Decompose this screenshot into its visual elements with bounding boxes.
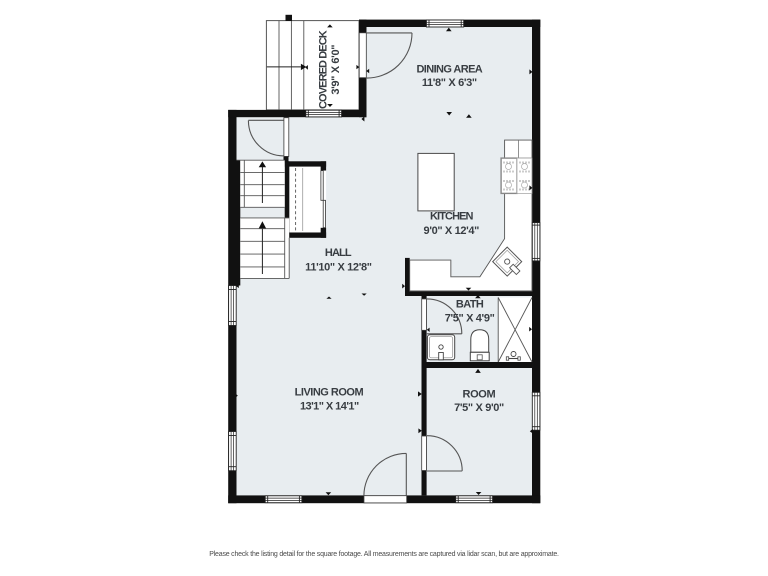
svg-text:11'10" X 12'8": 11'10" X 12'8" (305, 261, 372, 273)
svg-text:LIVING ROOM: LIVING ROOM (295, 387, 364, 399)
svg-text:9'0" X 12'4": 9'0" X 12'4" (424, 225, 480, 237)
svg-text:DINING AREA: DINING AREA (416, 64, 482, 76)
svg-text:HALL: HALL (325, 247, 352, 259)
svg-text:KITCHEN: KITCHEN (430, 211, 474, 223)
svg-text:13'1" X 14'1": 13'1" X 14'1" (300, 400, 359, 412)
svg-text:Please check the listing detai: Please check the listing detail for the … (209, 551, 559, 558)
svg-text:7'5" X 9'0": 7'5" X 9'0" (454, 402, 504, 414)
svg-text:11'8" X 6'3": 11'8" X 6'3" (422, 77, 477, 89)
svg-text:ROOM: ROOM (462, 389, 495, 401)
svg-text:BATH: BATH (456, 299, 484, 311)
svg-text:7'5" X 4'9": 7'5" X 4'9" (445, 312, 495, 324)
svg-text:3'9" X 6'0": 3'9" X 6'0" (330, 45, 342, 95)
svg-text:COVERED DECK: COVERED DECK (317, 30, 329, 109)
